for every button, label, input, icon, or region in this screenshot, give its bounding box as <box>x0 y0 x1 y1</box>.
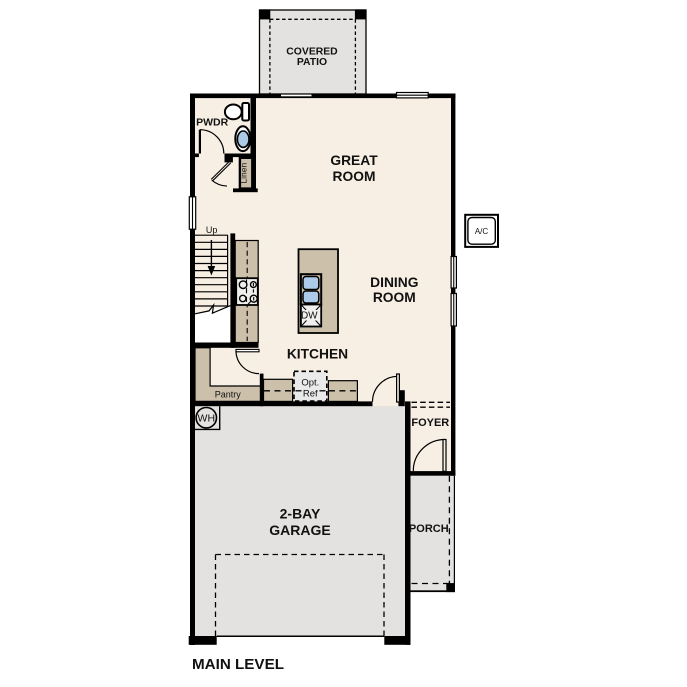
svg-text:PWDR: PWDR <box>196 117 228 129</box>
svg-text:GARAGE: GARAGE <box>269 522 330 538</box>
svg-text:DINING: DINING <box>370 275 418 290</box>
svg-text:COVERED: COVERED <box>286 46 338 57</box>
svg-text:ROOM: ROOM <box>373 290 416 305</box>
svg-text:2-BAY: 2-BAY <box>280 506 321 522</box>
svg-text:Pantry: Pantry <box>215 389 242 399</box>
svg-text:WH: WH <box>198 413 216 425</box>
svg-text:A/C: A/C <box>475 227 489 236</box>
svg-text:GREAT: GREAT <box>330 153 378 168</box>
svg-text:Up: Up <box>206 225 218 235</box>
svg-text:DW: DW <box>301 311 318 322</box>
svg-text:KITCHEN: KITCHEN <box>287 347 348 362</box>
svg-text:Opt.: Opt. <box>301 377 319 388</box>
svg-text:PATIO: PATIO <box>297 57 327 68</box>
svg-text:PORCH: PORCH <box>409 523 449 535</box>
svg-text:ROOM: ROOM <box>333 169 376 184</box>
svg-text:FOYER: FOYER <box>411 417 449 429</box>
svg-text:Linen: Linen <box>238 163 248 184</box>
svg-text:MAIN LEVEL: MAIN LEVEL <box>192 656 284 673</box>
svg-text:Ref: Ref <box>303 388 318 399</box>
